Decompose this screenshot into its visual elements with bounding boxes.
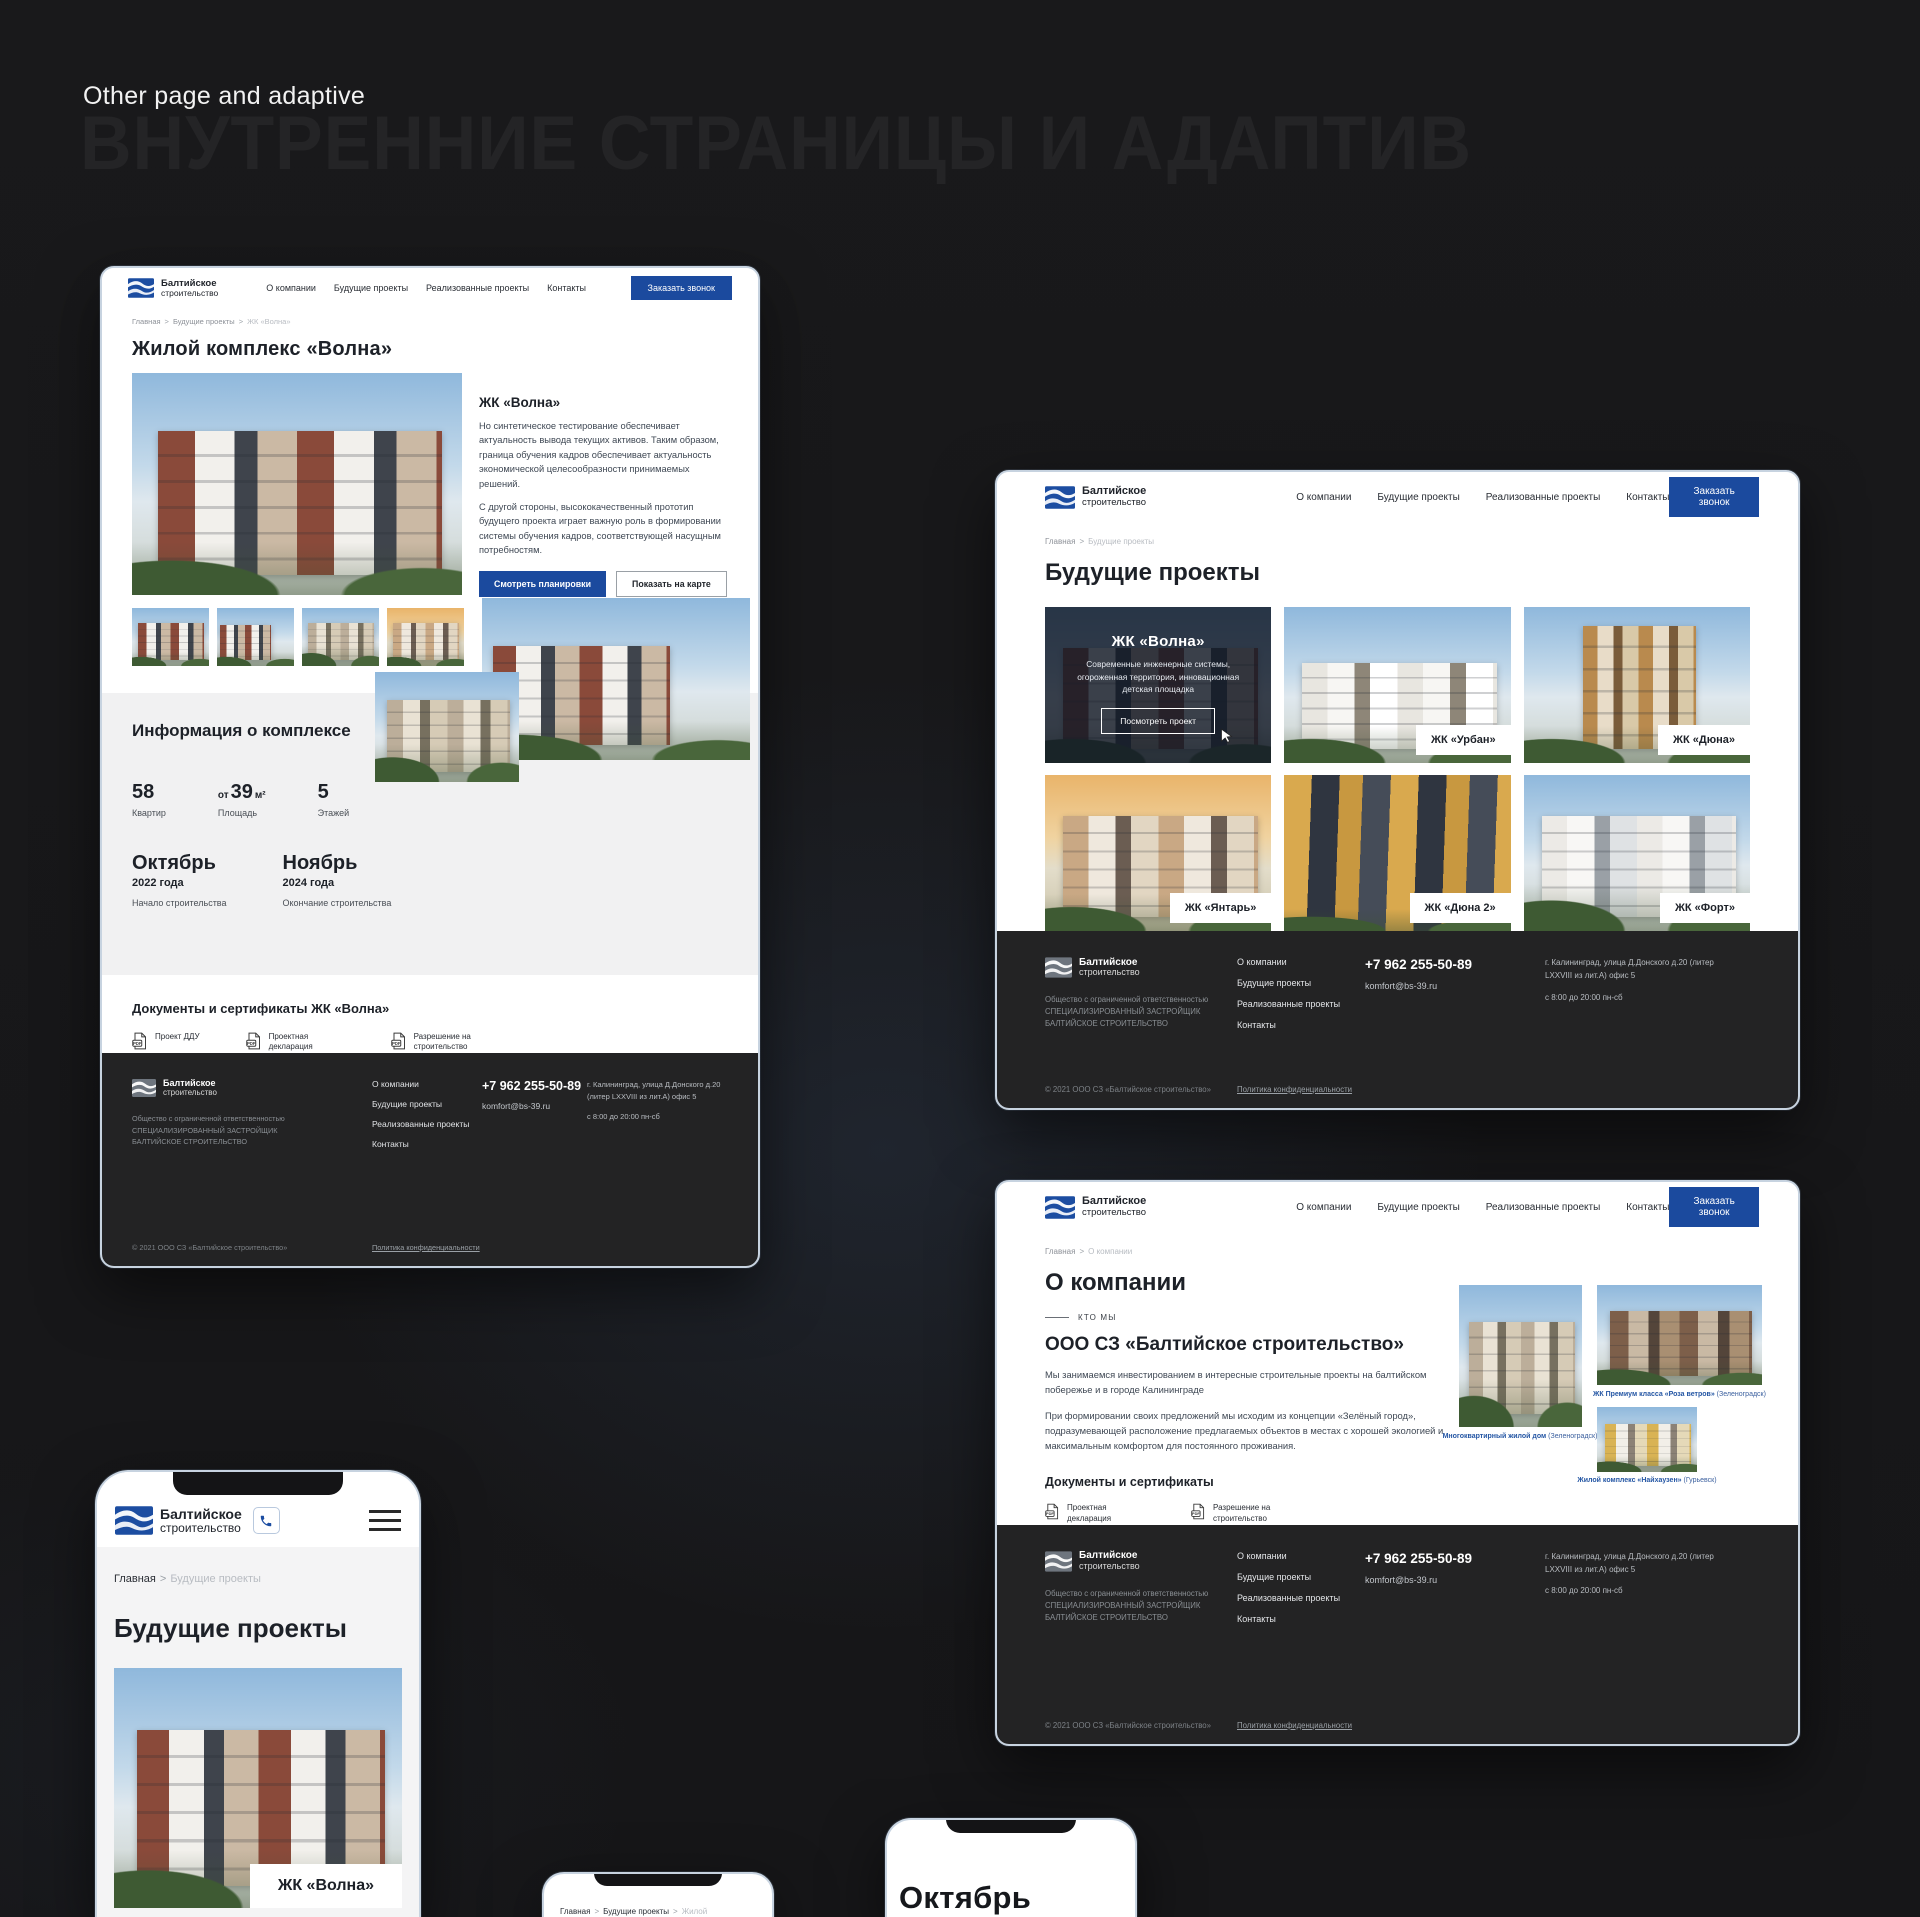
stats-row: 58 Квартир от39м² Площадь 5 Этажей xyxy=(132,781,728,818)
page-title: Будущие проекты xyxy=(1045,559,1750,587)
footer-privacy-link[interactable]: Политика конфиденциальности xyxy=(1237,1085,1365,1094)
project-card-volna[interactable]: ЖК «Волна» xyxy=(114,1668,402,1908)
hero-heading: ЖК «Волна» xyxy=(479,395,728,410)
footer-email[interactable]: komfort@bs-39.ru xyxy=(482,1101,587,1111)
stat-unit: м² xyxy=(255,790,266,801)
project-card-urban[interactable]: ЖК «Урбан» xyxy=(1284,607,1510,763)
logo-line2: строительство xyxy=(161,289,218,298)
timeline-label: Начало строительства xyxy=(132,898,227,908)
browser-mockup-about: Балтийскоестроительство О компании Будущ… xyxy=(995,1180,1800,1746)
about-text-block: ООО СЗ «Балтийское строительство» Мы зан… xyxy=(1045,1334,1475,1525)
footer-link-contacts[interactable]: Контакты xyxy=(1237,1614,1365,1624)
footer-link-realized[interactable]: Реализованные проекты xyxy=(1237,1593,1365,1603)
footer-logo[interactable]: Балтийскоестроительство xyxy=(1045,1551,1237,1572)
pdf-file-icon: PDF xyxy=(132,1032,147,1050)
breadcrumb: Главная>О компании xyxy=(1045,1247,1750,1256)
mobile-mockup-partial-volna: Главная>Будущие проекты>Жилой xyxy=(542,1872,774,1917)
crumb-current: Будущие проекты xyxy=(1088,537,1154,546)
svg-text:PDF: PDF xyxy=(247,1040,256,1045)
crumb-current: Будущие проекты xyxy=(170,1573,261,1585)
footer-legal-text: Общество с ограниченной ответственностью… xyxy=(1045,1588,1220,1624)
gallery-caption-3[interactable]: Жилой комплекс «Найхаузен» (Гурьевск) xyxy=(1559,1476,1735,1487)
call-request-button[interactable]: Заказать звонок xyxy=(631,276,732,300)
footer-link-future[interactable]: Будущие проекты xyxy=(372,1099,482,1109)
view-project-label: Посмотреть проект xyxy=(1120,716,1196,726)
about-paragraph-1: Мы занимаемся инвестированием в интересн… xyxy=(1045,1367,1475,1397)
pdf-file-icon: PDF xyxy=(391,1032,406,1050)
call-request-button[interactable]: Заказать звонок xyxy=(1669,477,1758,517)
hero-section: ЖК «Волна» Но синтетическое тестирование… xyxy=(132,373,728,597)
nav-contacts[interactable]: Контакты xyxy=(1626,492,1669,503)
crumb-separator: > xyxy=(594,1907,599,1916)
project-card-yantar[interactable]: ЖК «Янтарь» xyxy=(1045,775,1271,931)
project-description: Современные инженерные системы, огорожен… xyxy=(1061,658,1255,696)
nav-about[interactable]: О компании xyxy=(266,283,316,293)
caption-text: Многоквартирный жилой дом xyxy=(1443,1433,1547,1440)
phone-notch xyxy=(173,1471,343,1495)
timeline-month: Октябрь xyxy=(899,1880,1135,1916)
footer-phone[interactable]: +7 962 255-50-89 xyxy=(1365,957,1545,972)
site-footer: Балтийскоестроительство Общество с огран… xyxy=(997,931,1798,1108)
footer-link-future[interactable]: Будущие проекты xyxy=(1237,1572,1365,1582)
project-hover-overlay: ЖК «Волна» Современные инженерные систем… xyxy=(1045,607,1271,763)
site-header: Балтийскоестроительство О компании Будущ… xyxy=(102,268,758,308)
documents-section: Документы и сертификаты PDF Проектная де… xyxy=(1045,1475,1475,1525)
cursor-pointer-icon xyxy=(1219,728,1234,743)
presentation-canvas: Other page and adaptive ВНУТРЕННИЕ СТРАН… xyxy=(0,0,1920,1917)
documents-title: Документы и сертификаты xyxy=(1045,1475,1475,1489)
footer-link-about[interactable]: О компании xyxy=(1237,1551,1365,1561)
crumb-home[interactable]: Главная xyxy=(560,1907,590,1916)
kicker-line xyxy=(1045,1317,1069,1318)
main-nav: О компании Будущие проекты Реализованные… xyxy=(1296,1202,1669,1213)
stat-value: 58 xyxy=(132,781,166,804)
footer-copyright: © 2021 ООО СЗ «Балтийское строительство» xyxy=(1045,1721,1237,1730)
documents-title: Документы и сертификаты ЖК «Волна» xyxy=(132,1001,728,1016)
nav-future-projects[interactable]: Будущие проекты xyxy=(1377,492,1459,503)
footer-email[interactable]: komfort@bs-39.ru xyxy=(1365,1575,1545,1585)
footer-nav: О компании Будущие проекты Реализованные… xyxy=(1237,957,1365,1030)
thumbnail-photo[interactable] xyxy=(217,608,294,666)
pdf-file-icon: PDF xyxy=(1045,1503,1059,1520)
collage-photo-small xyxy=(375,672,519,782)
document-permit[interactable]: PDF Разрешение на строительство xyxy=(391,1032,490,1054)
logo-waves-icon xyxy=(128,278,154,298)
about-paragraph-2: При формировании своих предложений мы ис… xyxy=(1045,1408,1475,1453)
timeline-end: Ноябрь 2024 года Окончание строительства xyxy=(283,852,392,908)
stat-label: Квартир xyxy=(132,808,166,818)
footer-copyright: © 2021 ООО СЗ «Балтийское строительство» xyxy=(1045,1085,1237,1094)
logo-waves-icon xyxy=(1045,486,1075,509)
hero-photo xyxy=(132,373,462,595)
logo-waves-icon xyxy=(132,1079,156,1097)
kicker-label: КТО МЫ xyxy=(1078,1313,1117,1322)
caption-location: (Зеленоградск) xyxy=(1717,1391,1766,1398)
hero-paragraph-1: Но синтетическое тестирование обеспечива… xyxy=(479,419,728,491)
logo-waves-icon xyxy=(115,1506,153,1535)
stat-apartments: 58 Квартир xyxy=(132,781,166,818)
project-name-label: ЖК «Дюна» xyxy=(1658,725,1750,755)
footer-link-realized[interactable]: Реализованные проекты xyxy=(1237,999,1365,1009)
footer-address: г. Калининград, улица Д.Донского д.20 (л… xyxy=(587,1079,739,1103)
svg-text:PDF: PDF xyxy=(1192,1512,1200,1516)
logo-waves-icon xyxy=(1045,1551,1072,1572)
crumb-future[interactable]: Будущие проекты xyxy=(603,1907,669,1916)
timeline-month: Ноябрь xyxy=(283,852,392,875)
footer-link-realized[interactable]: Реализованные проекты xyxy=(372,1119,482,1129)
footer-copyright: © 2021 ООО СЗ «Балтийское строительство» xyxy=(132,1243,372,1252)
footer-link-future[interactable]: Будущие проекты xyxy=(1237,978,1365,988)
pdf-file-icon: PDF xyxy=(1191,1503,1205,1520)
crumb-home[interactable]: Главная xyxy=(114,1573,156,1585)
stat-floors: 5 Этажей xyxy=(318,781,350,818)
hero-text-block: ЖК «Волна» Но синтетическое тестирование… xyxy=(462,373,728,597)
document-ddu[interactable]: PDF Проект ДДУ xyxy=(132,1032,200,1054)
crumb-separator: > xyxy=(160,1573,166,1585)
document-label: Проект ДДУ xyxy=(155,1032,200,1043)
call-request-button[interactable]: Заказать звонок xyxy=(1669,1187,1758,1227)
crumb-future[interactable]: Будущие проекты xyxy=(173,317,235,326)
document-label: Проектная декларация xyxy=(269,1032,345,1054)
crumb-home[interactable]: Главная xyxy=(132,317,161,326)
nav-future-projects[interactable]: Будущие проекты xyxy=(1377,1202,1459,1213)
crumb-separator: > xyxy=(1079,537,1084,546)
breadcrumb: Главная>Будущие проекты xyxy=(1045,537,1750,546)
gallery-photo-3[interactable] xyxy=(1597,1407,1697,1472)
footer-privacy-link[interactable]: Политика конфиденциальности xyxy=(1237,1721,1365,1730)
project-card-duna[interactable]: ЖК «Дюна» xyxy=(1524,607,1750,763)
stat-value: 5 xyxy=(318,781,350,804)
nav-realized-projects[interactable]: Реализованные проекты xyxy=(426,283,529,293)
mobile-mockup-projects: Балтийскоестроительство Главная>Будущие … xyxy=(95,1470,421,1917)
timeline-row: Октябрь 2022 года Начало строительства Н… xyxy=(132,852,728,908)
projects-grid: ЖК «Волна» Современные инженерные систем… xyxy=(1045,607,1750,931)
caption-location: (Гурьевск) xyxy=(1684,1477,1717,1484)
site-header: Балтийскоестроительство О компании Будущ… xyxy=(997,1182,1798,1232)
nav-contacts[interactable]: Контакты xyxy=(547,283,586,293)
footer-logo[interactable]: Балтийскоестроительство xyxy=(132,1079,372,1097)
timeline-year: 2022 года xyxy=(132,877,227,889)
footer-hours: с 8:00 до 20:00 пн-сб xyxy=(1545,1586,1750,1595)
view-project-button[interactable]: Посмотреть проект xyxy=(1101,708,1215,734)
phone-notch xyxy=(594,1873,722,1886)
site-header: Балтийскоестроительство О компании Будущ… xyxy=(997,472,1798,522)
stat-value: 39 xyxy=(231,781,253,803)
footer-legal-text: Общество с ограниченной ответственностью… xyxy=(132,1113,302,1147)
gallery-photo-2[interactable] xyxy=(1597,1285,1762,1385)
caption-text: ЖК Премиум класса «Роза ветров» xyxy=(1593,1391,1715,1398)
timeline-label: Окончание строительства xyxy=(283,898,392,908)
stat-prefix: от xyxy=(218,790,229,801)
crumb-home[interactable]: Главная xyxy=(1045,1247,1075,1256)
footer-address: г. Калининград, улица Д.Донского д.20 (л… xyxy=(1545,1551,1715,1577)
document-permit[interactable]: PDF Разрешение на строительство xyxy=(1191,1503,1289,1525)
browser-mockup-volna: Балтийскоестроительство О компании Будущ… xyxy=(100,266,760,1268)
nav-realized-projects[interactable]: Реализованные проекты xyxy=(1486,492,1601,503)
logo-line1: Балтийское xyxy=(160,1507,242,1522)
project-name-label: ЖК «Форт» xyxy=(1660,893,1750,923)
gallery-caption-2[interactable]: ЖК Премиум класса «Роза ветров» (Зеленог… xyxy=(1552,1390,1800,1401)
crumb-home[interactable]: Главная xyxy=(1045,537,1075,546)
nav-realized-projects[interactable]: Реализованные проекты xyxy=(1486,1202,1601,1213)
footer-address: г. Калининград, улица Д.Донского д.20 (л… xyxy=(1545,957,1715,983)
footer-phone[interactable]: +7 962 255-50-89 xyxy=(1365,1551,1545,1566)
view-layouts-button[interactable]: Смотреть планировки xyxy=(479,571,606,597)
timeline-start: Октябрь 2022 года Начало строительства xyxy=(132,852,227,908)
footer-nav: О компании Будущие проекты Реализованные… xyxy=(1237,1551,1365,1624)
page-title: Жилой комплекс «Волна» xyxy=(132,338,728,361)
logo[interactable]: Балтийскоестроительство xyxy=(1045,486,1146,509)
project-name-label: ЖК «Дюна 2» xyxy=(1410,893,1511,923)
hamburger-menu-icon[interactable] xyxy=(369,1506,401,1535)
project-name: ЖК «Волна» xyxy=(1112,633,1205,650)
site-footer: Балтийскоестроительство Общество с огран… xyxy=(102,1053,758,1266)
footer-link-contacts[interactable]: Контакты xyxy=(1237,1020,1365,1030)
stat-label: Площадь xyxy=(218,808,266,818)
site-footer: Балтийскоестроительство Общество с огран… xyxy=(997,1525,1798,1744)
mobile-content: Главная>Будущие проекты Будущие проекты … xyxy=(97,1547,419,1917)
stat-label: Этажей xyxy=(318,808,350,818)
crumb-current: ЖК «Волна» xyxy=(247,317,290,326)
footer-hours: с 8:00 до 20:00 пн-сб xyxy=(587,1112,739,1121)
svg-text:PDF: PDF xyxy=(133,1040,142,1045)
footer-logo[interactable]: Балтийскоестроительство xyxy=(1045,957,1237,978)
caption-text: Жилой комплекс «Найхаузен» xyxy=(1577,1477,1681,1484)
svg-text:PDF: PDF xyxy=(1046,1512,1054,1516)
breadcrumb: Главная>Будущие проекты xyxy=(114,1573,402,1585)
stat-area: от39м² Площадь xyxy=(218,781,266,818)
mobile-mockup-partial-info: Октябрь xyxy=(885,1818,1137,1917)
project-card-duna2[interactable]: ЖК «Дюна 2» xyxy=(1284,775,1510,931)
footer-privacy-link[interactable]: Политика конфиденциальности xyxy=(372,1243,482,1252)
footer-nav: О компании Будущие проекты Реализованные… xyxy=(372,1079,482,1149)
footer-link-about[interactable]: О компании xyxy=(1237,957,1365,967)
project-card-volna[interactable]: ЖК «Волна» Современные инженерные систем… xyxy=(1045,607,1271,763)
thumbnail-photo[interactable] xyxy=(302,608,379,666)
document-label: Проектная декларация xyxy=(1067,1503,1143,1525)
logo[interactable]: Балтийскоестроительство xyxy=(128,278,218,298)
logo-line2: строительство xyxy=(1079,1562,1140,1571)
logo[interactable]: Балтийскоестроительство xyxy=(115,1506,242,1535)
browser-mockup-projects: Балтийскоестроительство О компании Будущ… xyxy=(995,470,1800,1110)
footer-link-about[interactable]: О компании xyxy=(372,1079,482,1089)
documents-section: Документы и сертификаты ЖК «Волна» PDF П… xyxy=(102,975,758,1054)
pdf-file-icon: PDF xyxy=(246,1032,261,1050)
logo-line2: строительство xyxy=(1082,1208,1146,1218)
logo-waves-icon xyxy=(1045,957,1072,978)
timeline-month: Октябрь xyxy=(132,852,227,875)
collage-photo-large xyxy=(482,598,750,760)
main-nav: О компании Будущие проекты Реализованные… xyxy=(266,283,586,293)
crumb-current: О компании xyxy=(1088,1247,1132,1256)
crumb-separator: > xyxy=(1079,1247,1084,1256)
breadcrumb: Главная>Будущие проекты>ЖК «Волна» xyxy=(132,317,728,326)
footer-phone[interactable]: +7 962 255-50-89 xyxy=(482,1079,587,1093)
footer-email[interactable]: komfort@bs-39.ru xyxy=(1365,981,1545,991)
call-icon-button[interactable] xyxy=(253,1507,280,1534)
gallery-photo-1[interactable] xyxy=(1459,1285,1582,1427)
logo-waves-icon xyxy=(1045,1196,1075,1219)
logo-line2: строительство xyxy=(163,1089,217,1097)
nav-about[interactable]: О компании xyxy=(1296,492,1351,503)
phone-icon xyxy=(259,1514,273,1528)
footer-hours: с 8:00 до 20:00 пн-сб xyxy=(1545,993,1750,1002)
thumbnail-photo[interactable] xyxy=(132,608,209,666)
caption-location: (Зеленоградск) xyxy=(1548,1433,1597,1440)
crumb-separator: > xyxy=(673,1907,678,1916)
thumbnail-photo[interactable] xyxy=(387,608,464,666)
project-card-fort[interactable]: ЖК «Форт» xyxy=(1524,775,1750,931)
main-nav: О компании Будущие проекты Реализованные… xyxy=(1296,492,1669,503)
project-name-label: ЖК «Янтарь» xyxy=(1170,893,1271,923)
page-title: Будущие проекты xyxy=(114,1613,402,1644)
gallery-caption-1[interactable]: Многоквартирный жилой дом (Зеленоградск) xyxy=(1434,1432,1606,1443)
crumb-separator: > xyxy=(239,317,243,326)
project-name-label: ЖК «Урбан» xyxy=(1416,725,1511,755)
footer-link-contacts[interactable]: Контакты xyxy=(372,1139,482,1149)
svg-text:PDF: PDF xyxy=(392,1040,401,1045)
document-declaration[interactable]: PDF Проектная декларация xyxy=(246,1032,345,1054)
complex-info-section: Информация о комплексе 58 Квартир от39м²… xyxy=(102,693,758,975)
nav-about[interactable]: О компании xyxy=(1296,1202,1351,1213)
document-label: Разрешение на строительство xyxy=(1213,1503,1289,1525)
nav-future-projects[interactable]: Будущие проекты xyxy=(334,283,408,293)
breadcrumb: Главная>Будущие проекты>Жилой xyxy=(560,1907,772,1916)
crumb-current: Жилой xyxy=(682,1907,708,1916)
footer-legal-text: Общество с ограниченной ответственностью… xyxy=(1045,994,1220,1030)
crumb-separator: > xyxy=(165,317,169,326)
nav-contacts[interactable]: Контакты xyxy=(1626,1202,1669,1213)
phone-notch xyxy=(946,1819,1076,1833)
logo-line2: строительство xyxy=(1082,498,1146,508)
watermark-heading: ВНУТРЕННИЕ СТРАНИЦЫ И АДАПТИВ xyxy=(80,100,1472,187)
document-label: Разрешение на строительство xyxy=(414,1032,490,1054)
show-on-map-button[interactable]: Показать на карте xyxy=(616,571,727,597)
logo-line2: строительство xyxy=(1079,968,1140,977)
document-declaration[interactable]: PDF Проектная декларация xyxy=(1045,1503,1143,1525)
company-heading: ООО СЗ «Балтийское строительство» xyxy=(1045,1334,1475,1356)
logo-line2: строительство xyxy=(160,1522,242,1535)
project-name-label: ЖК «Волна» xyxy=(250,1864,402,1908)
hero-paragraph-2: С другой стороны, высококачественный про… xyxy=(479,500,728,558)
timeline-year: 2024 года xyxy=(283,877,392,889)
logo[interactable]: Балтийскоестроительство xyxy=(1045,1196,1146,1219)
